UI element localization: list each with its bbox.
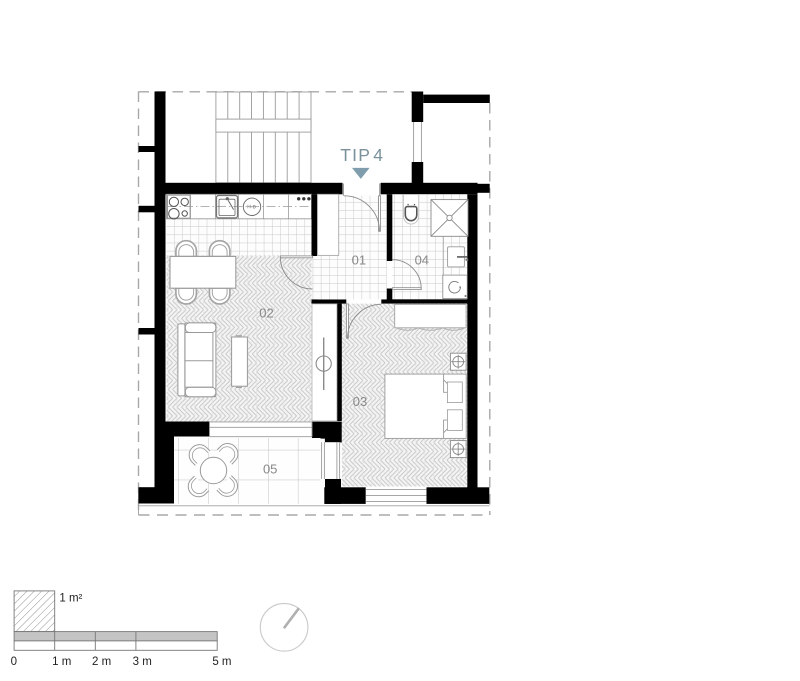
svg-text:3 m: 3 m xyxy=(133,656,152,668)
svg-text:2 m: 2 m xyxy=(92,656,111,668)
svg-text:02: 02 xyxy=(259,306,273,321)
svg-text:05: 05 xyxy=(263,462,277,477)
svg-text:TIP: TIP xyxy=(340,145,371,165)
svg-text:03: 03 xyxy=(353,394,367,409)
svg-text:1 m: 1 m xyxy=(52,656,71,668)
svg-text:1 m²: 1 m² xyxy=(59,593,82,605)
svg-text:4: 4 xyxy=(373,145,383,165)
svg-text:5 m: 5 m xyxy=(212,656,231,668)
svg-text:0: 0 xyxy=(11,656,17,668)
svg-text:01: 01 xyxy=(352,252,366,267)
svg-text:04: 04 xyxy=(415,252,429,267)
